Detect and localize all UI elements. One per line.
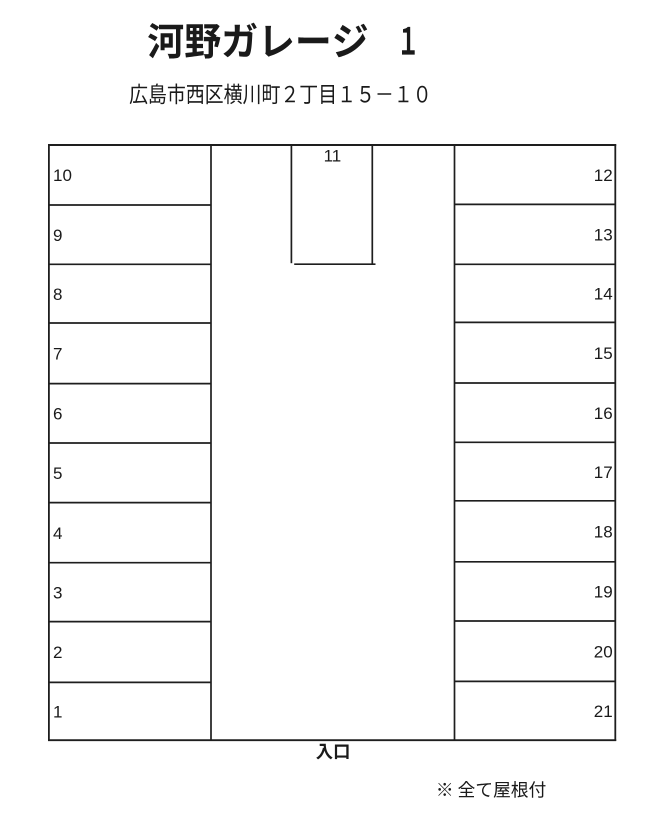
svg-text:18: 18: [594, 523, 613, 542]
svg-text:5: 5: [53, 464, 62, 483]
svg-text:4: 4: [53, 524, 62, 543]
svg-text:13: 13: [594, 226, 613, 245]
svg-text:19: 19: [594, 583, 613, 602]
svg-text:11: 11: [324, 147, 342, 166]
svg-text:12: 12: [594, 166, 613, 185]
svg-text:9: 9: [53, 226, 62, 245]
svg-text:17: 17: [594, 463, 613, 482]
svg-text:21: 21: [594, 702, 613, 721]
svg-text:20: 20: [594, 642, 613, 661]
svg-text:1: 1: [53, 703, 62, 722]
svg-text:7: 7: [53, 345, 62, 364]
svg-text:14: 14: [594, 285, 613, 304]
svg-text:8: 8: [53, 285, 62, 304]
svg-text:6: 6: [53, 405, 62, 424]
svg-text:2: 2: [53, 643, 62, 662]
svg-text:10: 10: [53, 166, 72, 185]
svg-text:16: 16: [594, 404, 613, 423]
svg-text:15: 15: [594, 344, 613, 363]
svg-text:3: 3: [53, 583, 62, 602]
